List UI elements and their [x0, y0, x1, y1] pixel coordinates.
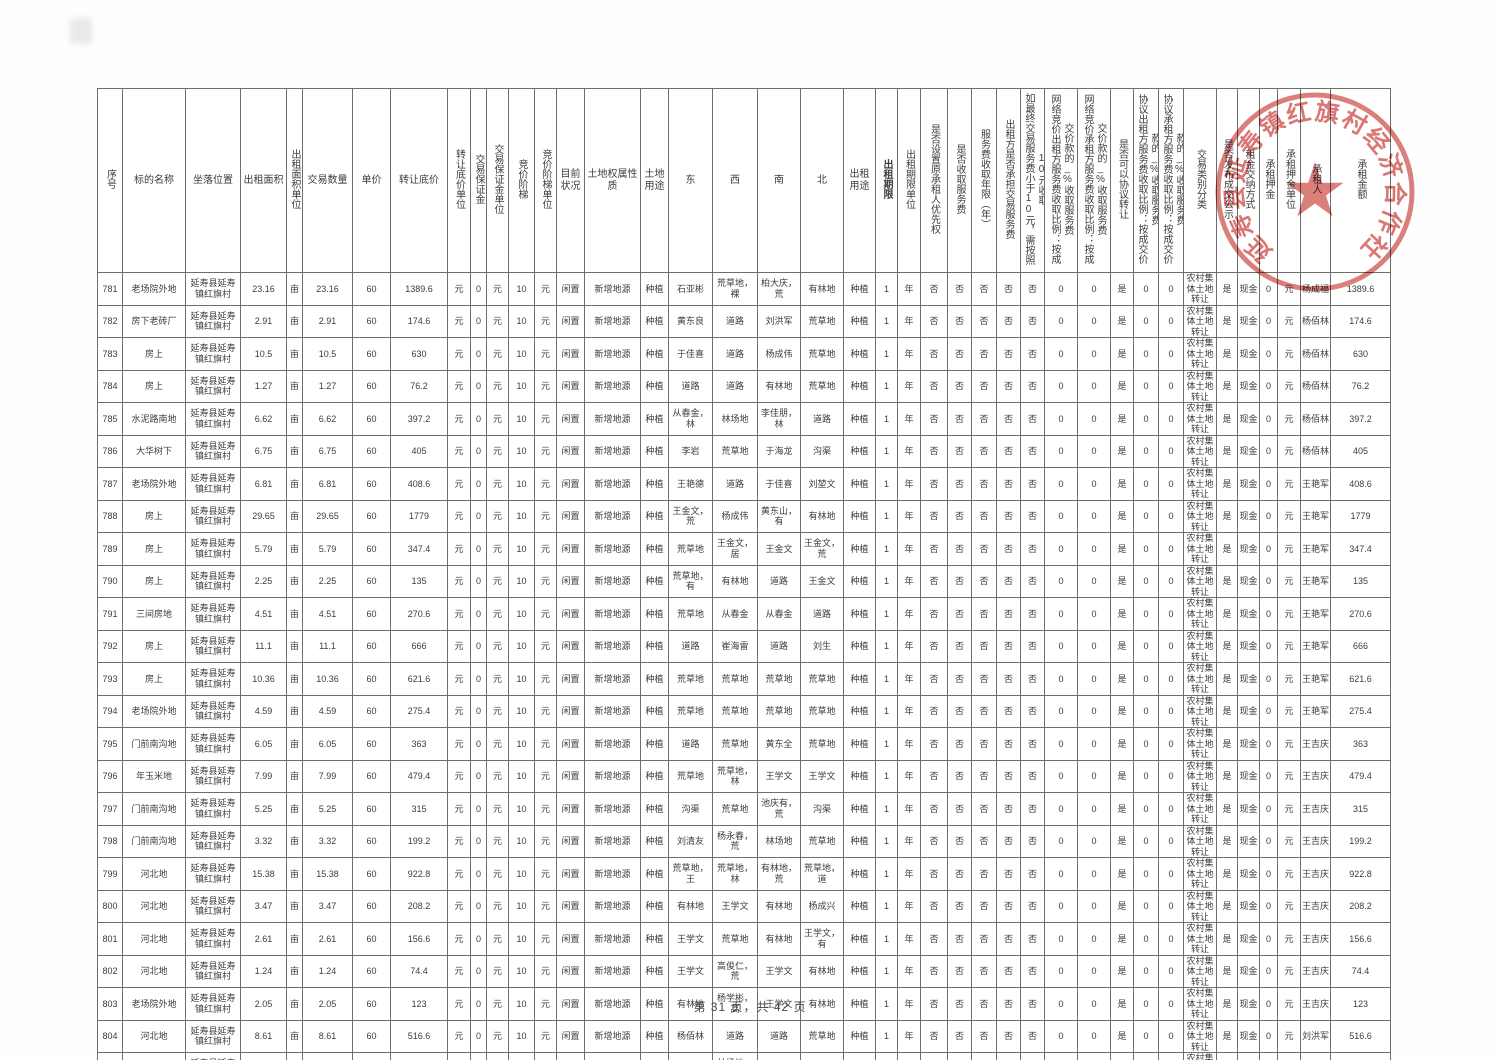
table-cell: 0 [471, 955, 487, 988]
column-header: 租金交纳方式 [1238, 89, 1260, 273]
table-cell: 0 [1045, 533, 1078, 566]
table-cell: 7.99 [241, 760, 287, 793]
table-cell: 479.4 [391, 760, 448, 793]
table-cell: 否 [921, 695, 948, 728]
table-cell: 李佳朋，林 [758, 403, 801, 436]
table-cell: 沟渠 [669, 793, 713, 826]
table-row: 783房上延寿县延寿镇红旗村10.5亩10.560630元0元10元闲置新增地源… [98, 338, 1391, 371]
table-cell: 否 [921, 305, 948, 338]
column-header: 承租押金单位 [1278, 89, 1301, 273]
table-row: 798门前南沟地延寿县延寿镇红旗村3.32亩3.3260199.2元0元10元闲… [98, 825, 1391, 858]
table-cell: 元 [1278, 500, 1301, 533]
table-cell: 3.47 [241, 890, 287, 923]
table-cell: 否 [921, 468, 948, 501]
table-cell: 农村集体土地转让 [1184, 630, 1217, 663]
table-cell: 道路 [758, 630, 801, 663]
table-cell: 现金 [1238, 403, 1260, 436]
table-cell: 0 [1045, 370, 1078, 403]
table-cell: 10 [509, 825, 535, 858]
table-cell: 有林地 [758, 890, 801, 923]
table-cell: 闲置 [557, 403, 585, 436]
table-cell: 0 [1159, 630, 1184, 663]
table-cell: 0 [1159, 728, 1184, 761]
table-cell: 0 [1078, 533, 1111, 566]
table-cell: 道路 [713, 1020, 758, 1053]
table-cell: 10 [509, 630, 535, 663]
table-cell: 种植 [844, 338, 876, 371]
table-cell: 是 [1217, 793, 1238, 826]
table-cell: 6.62 [303, 403, 353, 436]
table-cell: 0 [1045, 923, 1078, 956]
table-cell: 0 [1159, 955, 1184, 988]
table-cell: 60 [353, 435, 391, 468]
table-cell: 有林地 [669, 890, 713, 923]
table-cell: 否 [921, 663, 948, 696]
table-cell: 10 [509, 955, 535, 988]
table-cell: 道路 [669, 728, 713, 761]
table-cell: 否 [921, 890, 948, 923]
table-cell: 否 [921, 793, 948, 826]
table-cell: 786 [98, 435, 123, 468]
table-cell: 0 [471, 695, 487, 728]
table-cell: 4.59 [303, 695, 353, 728]
table-cell: 元 [535, 403, 557, 436]
table-cell: 亩 [287, 630, 303, 663]
table-cell: 0 [471, 663, 487, 696]
table-cell: 否 [1021, 1020, 1045, 1053]
table-cell: 元 [448, 890, 471, 923]
table-cell: 10 [509, 1053, 535, 1060]
table-cell: 0 [1134, 955, 1159, 988]
table-cell: 315 [391, 793, 448, 826]
table-cell: 亩 [287, 598, 303, 631]
table-cell: 延寿县延寿镇红旗村 [186, 890, 241, 923]
column-header-label: 西 [730, 175, 740, 187]
table-cell: 延寿县延寿镇红旗村 [186, 273, 241, 306]
table-cell: 荒草地 [669, 760, 713, 793]
table-cell: 老场院外地 [123, 273, 186, 306]
table-cell: 76.2 [1331, 370, 1391, 403]
table-cell: 1 [876, 598, 898, 631]
table-cell: 元 [487, 728, 509, 761]
table-cell: 60 [353, 728, 391, 761]
table-cell: 种植 [844, 273, 876, 306]
table-cell: 1 [876, 435, 898, 468]
table-cell: 年 [898, 825, 921, 858]
table-cell: 0 [1078, 695, 1111, 728]
table-cell: 元 [487, 273, 509, 306]
column-header: 转让底价 [391, 89, 448, 273]
table-cell: 延寿县延寿镇红旗村 [186, 338, 241, 371]
column-header: 承租人 [1301, 89, 1331, 273]
table-cell: 王吉庆 [1301, 923, 1331, 956]
table-cell: 河北地 [123, 890, 186, 923]
column-header-label: 坐落位置 [193, 175, 233, 187]
table-cell: 是 [1111, 955, 1134, 988]
table-cell: 否 [972, 305, 997, 338]
table-cell: 现金 [1238, 533, 1260, 566]
scan-artifact [70, 18, 92, 44]
table-cell: 801 [98, 923, 123, 956]
table-cell: 杨佰林 [1301, 403, 1331, 436]
table-cell: 有林地 [758, 370, 801, 403]
column-header: 出租期限 [876, 89, 898, 273]
table-cell: 种植 [641, 500, 669, 533]
column-header: 交易保证金单位 [487, 89, 509, 273]
table-cell: 元 [487, 305, 509, 338]
table-cell: 0 [471, 435, 487, 468]
table-cell: 否 [921, 760, 948, 793]
table-cell: 种植 [641, 923, 669, 956]
table-row: 799河北地延寿县延寿镇红旗村15.38亩15.3860922.8元0元10元闲… [98, 858, 1391, 891]
table-cell: 60 [353, 273, 391, 306]
table-cell: 0 [1078, 630, 1111, 663]
table-cell: 0 [1159, 663, 1184, 696]
table-cell: 荒草地 [669, 598, 713, 631]
table-cell: 元 [487, 825, 509, 858]
table-cell: 0 [1260, 533, 1278, 566]
table-cell: 347.4 [391, 533, 448, 566]
table-cell: 元 [487, 663, 509, 696]
table-cell: 新增地源 [585, 533, 641, 566]
table-cell: 0 [1159, 370, 1184, 403]
table-cell: 道路 [758, 1020, 801, 1053]
table-cell: 年 [898, 695, 921, 728]
table-cell: 现金 [1238, 923, 1260, 956]
table-cell: 2.61 [303, 923, 353, 956]
table-cell: 否 [997, 760, 1021, 793]
table-cell: 是 [1217, 370, 1238, 403]
table-cell: 否 [1021, 565, 1045, 598]
table-cell: 王吉庆 [1301, 793, 1331, 826]
table-cell: 否 [972, 435, 997, 468]
column-header-label: 如最终交易服务费小于10元，需按照10元收取 [1022, 93, 1045, 265]
table-cell: 0 [471, 923, 487, 956]
table-cell: 亩 [287, 1020, 303, 1053]
table-cell: 王学文 [669, 955, 713, 988]
table-cell: 否 [1021, 1053, 1045, 1060]
table-cell: 亩 [287, 760, 303, 793]
table-cell: 否 [997, 500, 1021, 533]
table-cell: 亩 [287, 890, 303, 923]
table-cell: 农村集体土地转让 [1184, 695, 1217, 728]
table-cell: 5.79 [303, 533, 353, 566]
table-cell: 亩 [287, 825, 303, 858]
table-cell: 否 [997, 1053, 1021, 1060]
table-cell: 现金 [1238, 1020, 1260, 1053]
table-cell: 否 [1021, 663, 1045, 696]
table-cell: 道路 [713, 305, 758, 338]
table-row: 805房上延寿县延寿镇红旗村2.09亩2.0960125.4元0元10元闲置新增… [98, 1053, 1391, 1060]
table-row: 796年玉米地延寿县延寿镇红旗村7.99亩7.9960479.4元0元10元闲置… [98, 760, 1391, 793]
table-cell: 元 [448, 273, 471, 306]
table-cell: 荒草地 [801, 695, 844, 728]
table-cell: 荒草地 [713, 923, 758, 956]
table-cell: 1 [876, 468, 898, 501]
table-cell: 元 [448, 825, 471, 858]
table-cell: 否 [948, 890, 972, 923]
column-header: 土地用途 [641, 89, 669, 273]
column-header-label: 单价 [362, 175, 382, 187]
table-cell: 房上 [123, 500, 186, 533]
table-cell: 荒草地，有 [669, 565, 713, 598]
table-cell: 60 [353, 955, 391, 988]
table-cell: 60 [353, 403, 391, 436]
table-cell: 否 [948, 695, 972, 728]
table-cell: 闲置 [557, 598, 585, 631]
table-cell: 元 [535, 500, 557, 533]
table-cell: 0 [1045, 435, 1078, 468]
table-cell: 否 [1021, 435, 1045, 468]
table-cell: 现金 [1238, 890, 1260, 923]
column-header: 标的名称 [123, 89, 186, 273]
table-cell: 王艳军 [1301, 695, 1331, 728]
table-cell: 农村集体土地转让 [1184, 565, 1217, 598]
table-cell: 新增地源 [585, 890, 641, 923]
table-cell: 是 [1111, 565, 1134, 598]
table-cell: 666 [391, 630, 448, 663]
table-cell: 否 [1021, 533, 1045, 566]
table-cell: 0 [1260, 760, 1278, 793]
table-cell: 922.8 [1331, 858, 1391, 891]
table-cell: 800 [98, 890, 123, 923]
table-cell: 0 [1045, 305, 1078, 338]
table-cell: 1 [876, 825, 898, 858]
table-cell: 3.32 [303, 825, 353, 858]
table-cell: 河北地 [123, 923, 186, 956]
table-cell: 闲置 [557, 305, 585, 338]
table-cell: 种植 [641, 273, 669, 306]
table-cell: 0 [1159, 403, 1184, 436]
table-cell: 元 [1278, 1020, 1301, 1053]
table-cell: 元 [448, 468, 471, 501]
table-cell: 29.65 [241, 500, 287, 533]
table-cell: 元 [1278, 338, 1301, 371]
table-cell: 否 [997, 1020, 1021, 1053]
table-cell: 闲置 [557, 695, 585, 728]
table-cell: 是 [1217, 435, 1238, 468]
table-cell: 是 [1111, 695, 1134, 728]
table-cell: 60 [353, 338, 391, 371]
table-cell: 元 [1278, 923, 1301, 956]
table-cell: 现金 [1238, 858, 1260, 891]
table-cell: 否 [997, 890, 1021, 923]
table-cell: 是 [1111, 663, 1134, 696]
table-cell: 60 [353, 630, 391, 663]
table-cell: 新增地源 [585, 630, 641, 663]
table-cell: 刘堃文 [801, 468, 844, 501]
table-cell: 否 [948, 955, 972, 988]
table-cell: 0 [1134, 1020, 1159, 1053]
table-cell: 元 [487, 500, 509, 533]
table-cell: 否 [997, 825, 1021, 858]
table-cell: 1 [876, 858, 898, 891]
table-cell: 是 [1217, 273, 1238, 306]
table-cell: 元 [1278, 305, 1301, 338]
table-cell: 崔海雷 [713, 630, 758, 663]
table-cell: 1 [876, 403, 898, 436]
table-cell: 60 [353, 1053, 391, 1060]
page-number-footer: 第 31 页，共 42 页 [0, 998, 1500, 1015]
table-cell: 802 [98, 955, 123, 988]
table-cell: 农村集体土地转让 [1184, 403, 1217, 436]
table-cell: 1.24 [303, 955, 353, 988]
column-header: 承租金额 [1331, 89, 1391, 273]
table-cell: 是 [1217, 565, 1238, 598]
table-cell: 荒草地 [801, 305, 844, 338]
table-cell: 延寿县延寿镇红旗村 [186, 728, 241, 761]
table-cell: 年 [898, 533, 921, 566]
column-header-label: 服务费收取年限（年） [978, 129, 991, 229]
table-cell: 农村集体土地转让 [1184, 500, 1217, 533]
table-cell: 柏大庆，荒 [758, 273, 801, 306]
table-cell: 黄东良 [669, 305, 713, 338]
table-row: 800河北地延寿县延寿镇红旗村3.47亩3.4760208.2元0元10元闲置新… [98, 890, 1391, 923]
table-cell: 新增地源 [585, 858, 641, 891]
table-cell: 否 [921, 728, 948, 761]
table-cell: 0 [1045, 955, 1078, 988]
table-cell: 现金 [1238, 500, 1260, 533]
table-cell: 有林地，荒 [758, 858, 801, 891]
table-cell: 787 [98, 468, 123, 501]
table-cell: 6.75 [303, 435, 353, 468]
table-cell: 0 [1260, 923, 1278, 956]
table-cell: 房上 [123, 565, 186, 598]
table-cell: 新增地源 [585, 565, 641, 598]
table-cell: 1389.6 [1331, 273, 1391, 306]
column-header: 转让底价单位 [448, 89, 471, 273]
table-cell: 元 [535, 273, 557, 306]
table-cell: 荒草地 [758, 695, 801, 728]
table-cell: 0 [1134, 1053, 1159, 1060]
table-cell: 闲置 [557, 663, 585, 696]
table-cell: 年 [898, 1020, 921, 1053]
column-header-label: 是否可以协议转让 [1116, 139, 1129, 219]
table-cell: 种植 [641, 663, 669, 696]
table-cell: 亩 [287, 858, 303, 891]
table-cell: 0 [1134, 825, 1159, 858]
table-cell: 630 [1331, 338, 1391, 371]
table-cell: 790 [98, 565, 123, 598]
table-cell: 新增地源 [585, 663, 641, 696]
table-cell: 刘洪军 [1301, 1020, 1331, 1053]
table-cell: 否 [1021, 370, 1045, 403]
table-cell: 否 [972, 403, 997, 436]
table-cell: 刘洪军 [1301, 1053, 1331, 1060]
table-row: 801河北地延寿县延寿镇红旗村2.61亩2.6160156.6元0元10元闲置新… [98, 923, 1391, 956]
table-cell: 种植 [844, 370, 876, 403]
table-cell: 10.36 [241, 663, 287, 696]
table-cell: 否 [1021, 955, 1045, 988]
table-cell: 6.75 [241, 435, 287, 468]
column-header-label: 承租押金单位 [1283, 149, 1296, 209]
table-cell: 现金 [1238, 338, 1260, 371]
table-cell: 元 [448, 500, 471, 533]
table-cell: 0 [1045, 338, 1078, 371]
table-cell: 闲置 [557, 793, 585, 826]
table-cell: 1 [876, 500, 898, 533]
table-cell: 795 [98, 728, 123, 761]
table-cell: 0 [471, 760, 487, 793]
table-cell: 杨永春，荒 [713, 825, 758, 858]
table-cell: 种植 [641, 695, 669, 728]
table-cell: 从春金 [758, 598, 801, 631]
table-cell: 0 [1078, 338, 1111, 371]
table-cell: 元 [1278, 403, 1301, 436]
scanned-document-page: 序号标的名称坐落位置出租面积出租面积单位交易数量单价转让底价转让底价单位交易保证… [0, 0, 1500, 1060]
table-cell: 0 [1045, 403, 1078, 436]
table-cell: 1 [876, 370, 898, 403]
table-cell: 元 [1278, 273, 1301, 306]
table-cell: 208.2 [1331, 890, 1391, 923]
table-cell: 年 [898, 890, 921, 923]
table-cell: 0 [471, 305, 487, 338]
table-cell: 元 [448, 630, 471, 663]
table-cell: 0 [1045, 1053, 1078, 1060]
table-cell: 延寿县延寿镇红旗村 [186, 858, 241, 891]
table-cell: 现金 [1238, 565, 1260, 598]
table-cell: 新增地源 [585, 955, 641, 988]
table-cell: 0 [1134, 598, 1159, 631]
table-cell: 1 [876, 565, 898, 598]
table-cell: 否 [921, 500, 948, 533]
table-cell: 否 [1021, 500, 1045, 533]
table-cell: 否 [972, 793, 997, 826]
table-cell: 延寿县延寿镇红旗村 [186, 305, 241, 338]
table-cell: 23.16 [241, 273, 287, 306]
table-cell: 否 [921, 923, 948, 956]
table-cell: 621.6 [1331, 663, 1391, 696]
table-cell: 516.6 [391, 1020, 448, 1053]
table-cell: 种植 [641, 305, 669, 338]
table-cell: 亩 [287, 1053, 303, 1060]
table-cell: 延寿县延寿镇红旗村 [186, 500, 241, 533]
table-cell: 农村集体土地转让 [1184, 273, 1217, 306]
table-sheet: 序号标的名称坐落位置出租面积出租面积单位交易数量单价转让底价转让底价单位交易保证… [97, 88, 1391, 1060]
table-cell: 元 [448, 1020, 471, 1053]
table-cell: 2.25 [241, 565, 287, 598]
table-cell: 否 [997, 565, 1021, 598]
column-header: 是否发布成交公示 [1217, 89, 1238, 273]
table-cell: 0 [471, 825, 487, 858]
table-cell: 元 [1278, 1053, 1301, 1060]
table-cell: 是 [1217, 923, 1238, 956]
table-cell: 元 [535, 760, 557, 793]
table-cell: 沟渠 [801, 793, 844, 826]
table-cell: 道路 [713, 338, 758, 371]
table-cell: 亩 [287, 793, 303, 826]
column-header-label: 承租押金 [1262, 159, 1275, 199]
lease-table: 序号标的名称坐落位置出租面积出租面积单位交易数量单价转让底价转让底价单位交易保证… [97, 88, 1391, 1060]
table-cell: 荒草地 [713, 793, 758, 826]
table-cell: 0 [1260, 500, 1278, 533]
table-cell: 否 [1021, 695, 1045, 728]
table-cell: 10 [509, 695, 535, 728]
table-cell: 否 [972, 500, 997, 533]
table-cell: 否 [921, 1053, 948, 1060]
table-cell: 0 [1078, 793, 1111, 826]
table-cell: 60 [353, 468, 391, 501]
table-cell: 农村集体土地转让 [1184, 858, 1217, 891]
table-cell: 种植 [641, 598, 669, 631]
table-cell: 现金 [1238, 663, 1260, 696]
table-cell: 老场院外地 [123, 695, 186, 728]
table-cell: 0 [1260, 890, 1278, 923]
column-header-label: 是否设置原承租人优先权 [928, 124, 941, 234]
table-cell: 922.8 [391, 858, 448, 891]
table-cell: 否 [997, 923, 1021, 956]
table-cell: 796 [98, 760, 123, 793]
